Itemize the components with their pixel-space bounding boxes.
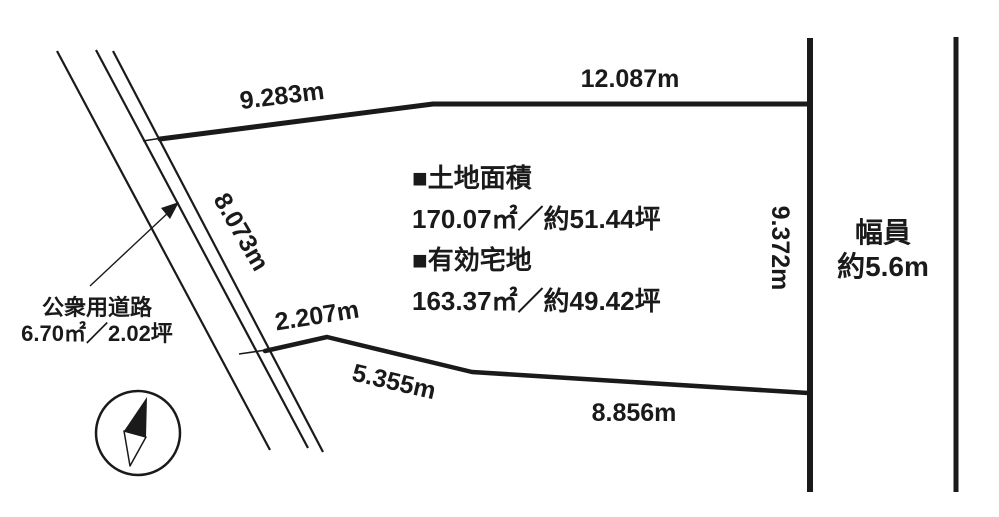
leader-arrow <box>90 202 179 286</box>
public-road-area: 6.70㎡／2.02坪 <box>12 321 182 347</box>
land-area-value: 170.07㎡／約51.44坪 <box>412 199 661 240</box>
area-info-block: ■土地面積 170.07㎡／約51.44坪 ■有効宅地 163.37㎡／約49.… <box>412 158 661 322</box>
public-road-name: 公衆用道路 <box>12 295 182 321</box>
dimension-label-south-right: 8.856m <box>574 400 694 426</box>
road-lines <box>57 50 323 452</box>
road-width-label: 幅員 約5.6m <box>812 216 954 284</box>
land-plot-diagram: 9.283m 12.087m 8.073m 2.207m 5.355m 8.85… <box>0 0 999 517</box>
dimension-label-north-east: 12.087m <box>560 66 700 92</box>
dimension-label-east: 9.372m <box>767 188 793 308</box>
boundary-tick-bottom <box>239 350 266 354</box>
land-area-heading: ■土地面積 <box>412 158 661 199</box>
public-road-label: 公衆用道路 6.70㎡／2.02坪 <box>12 295 182 347</box>
road-width-value: 約5.6m <box>812 250 954 284</box>
effective-area-value: 163.37㎡／約49.42坪 <box>412 281 661 322</box>
road-width-heading: 幅員 <box>812 216 954 250</box>
effective-area-heading: ■有効宅地 <box>412 240 661 281</box>
north-compass-icon <box>96 391 180 475</box>
